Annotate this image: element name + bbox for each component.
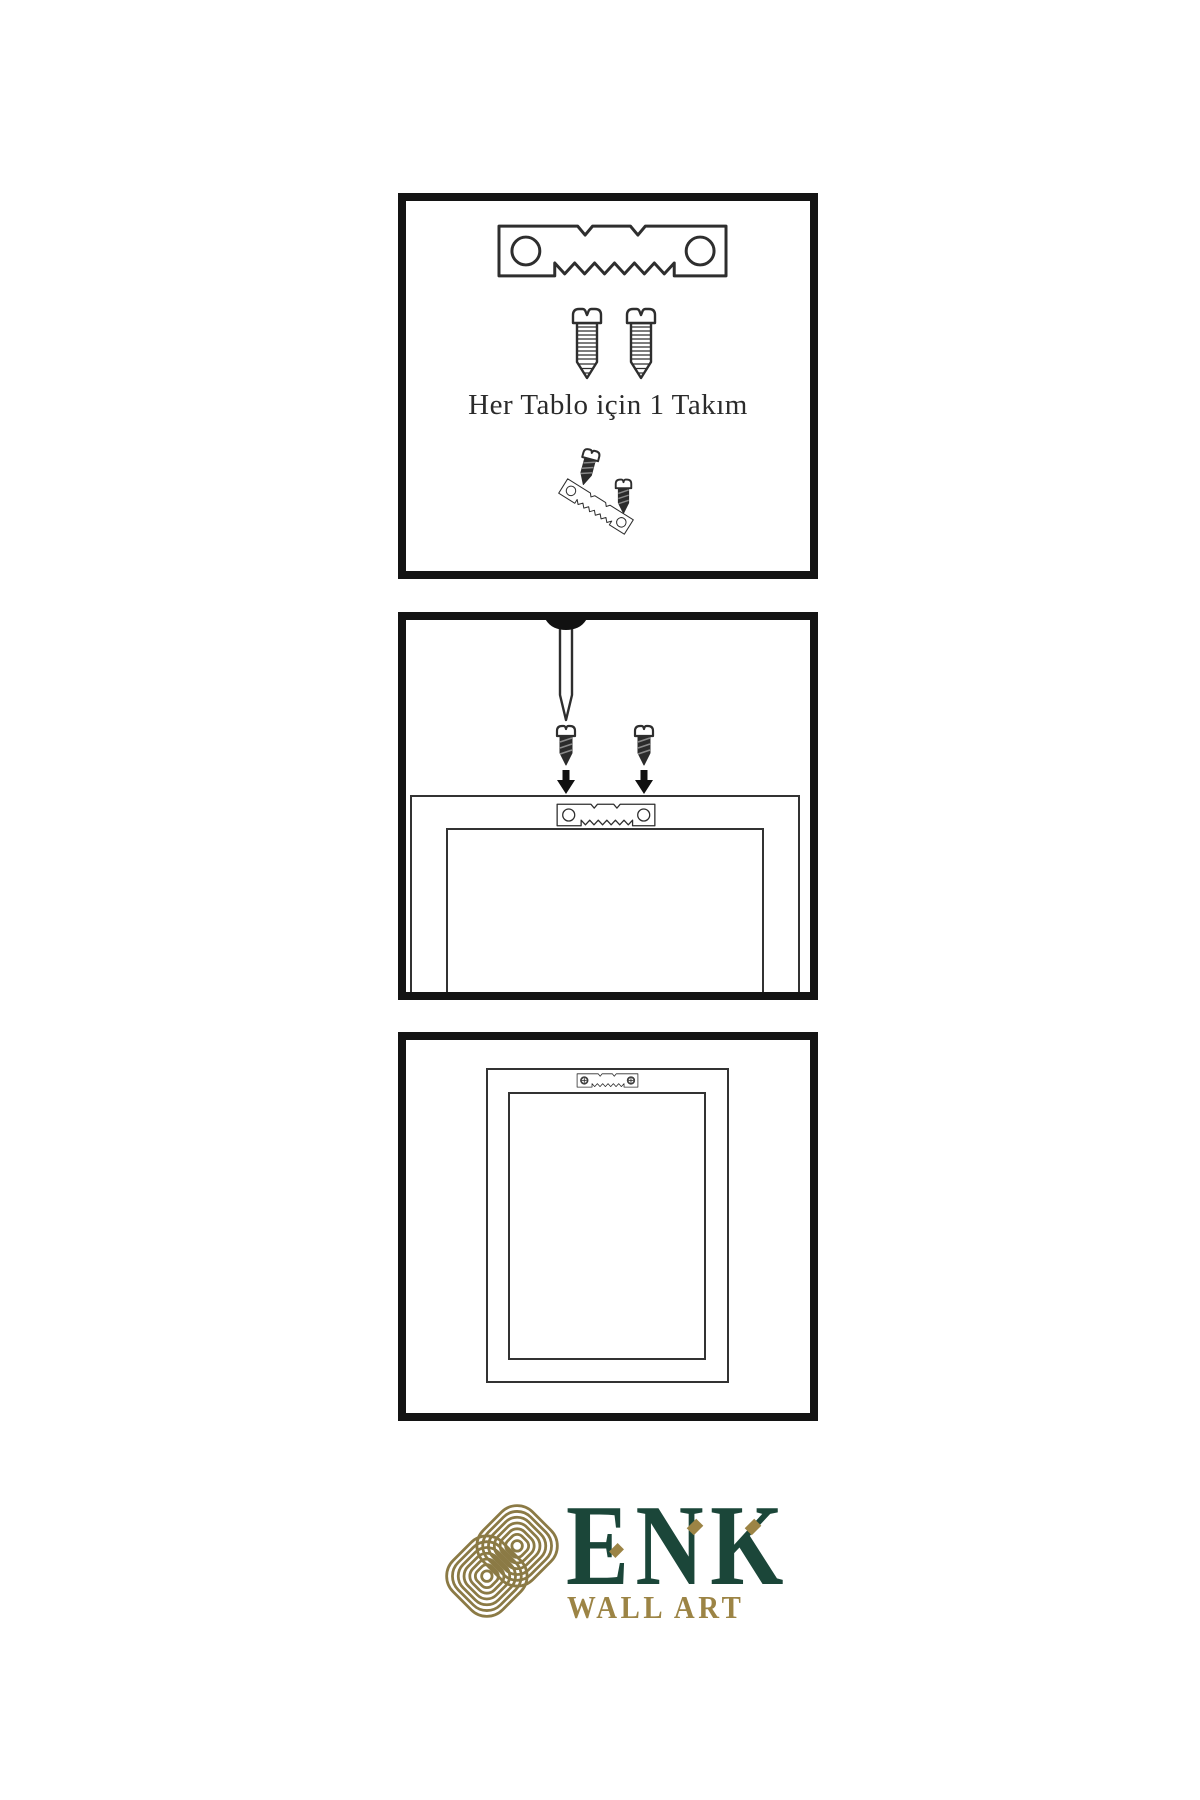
frame-back-inner [508,1092,706,1360]
mounted-hanger-with-screws-icon [576,1073,639,1089]
screw-icon [573,445,603,489]
panel-hardware-set: Her Tablo için 1 Takım [398,193,818,579]
arrow-down-icon [557,770,575,794]
panel-hang-frame [398,1032,818,1421]
arrow-down-icon [635,770,653,794]
screw-icon [624,305,658,381]
panel-mount-hanger [398,612,818,1000]
instruction-sheet: Her Tablo için 1 Takım [0,0,1200,1800]
frame-back-inner [446,828,764,992]
sawtooth-hanger-icon [496,223,729,279]
panel-mount-hanger-content [406,620,810,992]
set-caption: Her Tablo için 1 Takım [406,389,810,422]
screw-into-hanger-demo [556,447,666,557]
panel-hardware-set-content: Her Tablo için 1 Takım [406,201,810,571]
knot-logo-icon [438,1497,566,1625]
screw-icon [570,305,604,381]
wall-nail-icon [542,620,590,725]
screw-icon [633,723,655,767]
brand-subtitle: WALL ART [567,1591,744,1623]
brand-name: ENK [566,1488,790,1603]
screw-icon [555,723,577,767]
panel-hang-frame-content [406,1040,810,1413]
sawtooth-hanger-icon [555,803,657,827]
